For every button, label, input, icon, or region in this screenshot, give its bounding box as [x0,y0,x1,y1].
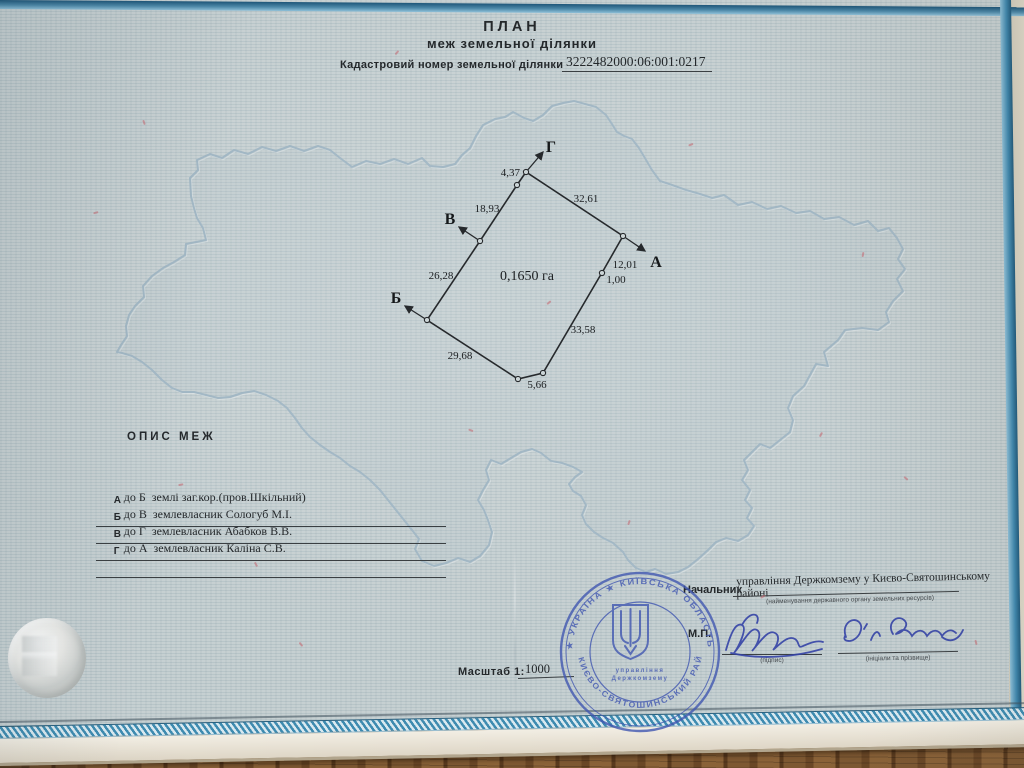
scale-value: 1000 [525,662,550,677]
chief-role-label: Начальник [683,584,742,596]
seal-place-label: М.П. [688,628,711,640]
paper-crease [514,545,516,705]
holographic-foil-seal [8,618,86,698]
signature-caption: (підпис) [722,657,822,664]
cadastral-number-label: Кадастровий номер земельної ділянки [340,59,563,71]
page-subtitle: меж земельної ділянки [402,36,622,51]
signature-line [722,654,822,655]
cadastral-number-value: 3222482000:06:001:0217 [566,54,706,70]
boundary-row-corner: Г [114,546,124,557]
cadastral-number-underline [562,71,712,72]
photographed-land-plan-document: ПЛАН меж земельної ділянки Кадастровий н… [0,0,1024,768]
document-paper [0,0,1024,726]
boundary-row-text: до А землевласник Каліна С.В. [124,541,286,555]
page-title: ПЛАН [402,19,622,35]
boundaries-description-heading: ОПИС МЕЖ [127,431,216,443]
boundary-row-g: Гдо А землевласник Каліна С.В. [96,521,446,578]
